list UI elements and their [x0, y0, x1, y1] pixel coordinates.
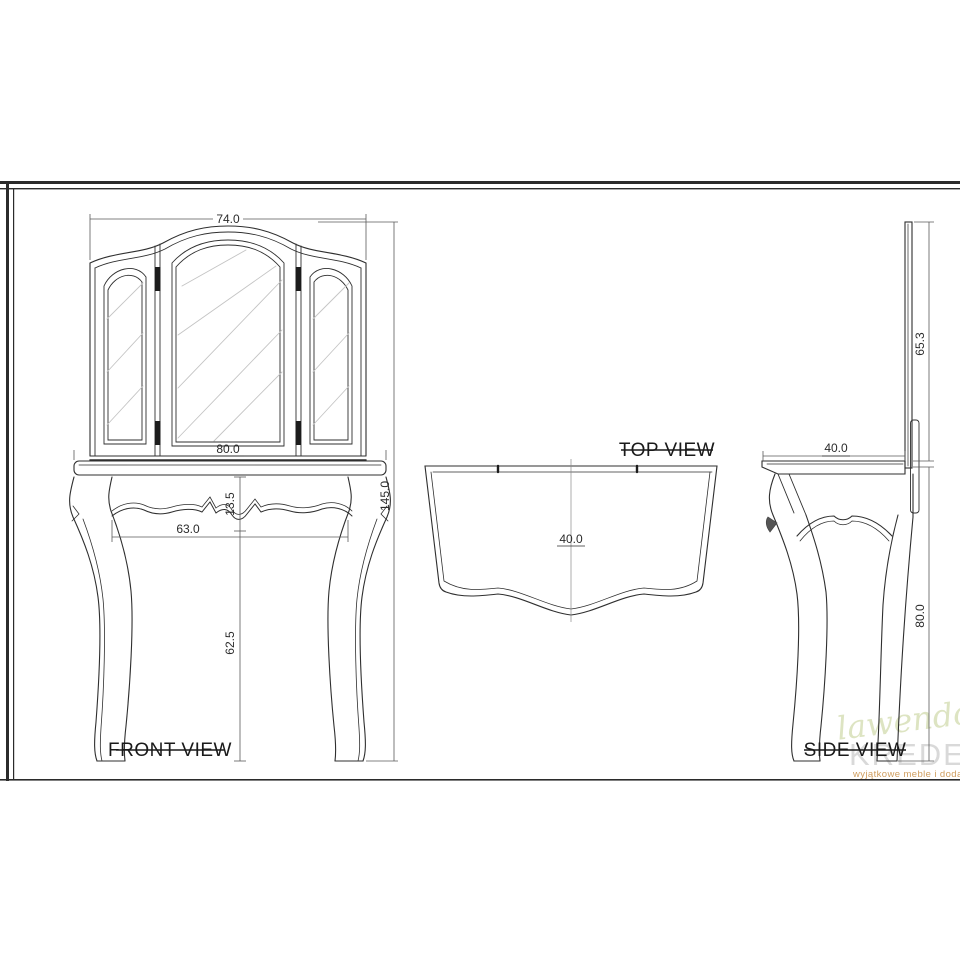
drawing-canvas: 74.0 80.0 145.0 13.5 63.0 62.5 40.0 [0, 0, 960, 960]
side-apron [797, 516, 892, 541]
side-mirror [905, 222, 919, 513]
dim-leg-span-value: 63.0 [176, 522, 200, 536]
center-panel-opening [172, 240, 284, 446]
side-tabletop [762, 461, 905, 474]
dim-mirror-width-value: 74.0 [216, 212, 240, 226]
side-back-leg [877, 474, 913, 761]
top-hinge-marks [498, 466, 637, 472]
side-tabletop-slab [762, 461, 905, 474]
hinge-left-bottom [155, 421, 161, 445]
mirror-center-panel [172, 240, 284, 446]
mirror-right-panel [310, 268, 352, 444]
dim-side-depth-value: 40.0 [824, 441, 848, 455]
frame-top-outer-rule [0, 181, 960, 184]
hinge-right-bottom [296, 421, 302, 445]
dim-leg-height-value: 62.5 [223, 631, 237, 655]
right-leg-accent-line [356, 519, 377, 761]
sheet-frame [0, 181, 960, 781]
right-leg-outer-contour [360, 477, 390, 761]
mirror-frame [90, 226, 366, 460]
front-tabletop [74, 461, 386, 475]
frame-left-inner-rule [13, 188, 14, 780]
dim-top-width-value: 80.0 [216, 442, 240, 456]
front-left-leg [70, 477, 132, 761]
view-labels: FRONT VIEW TOP VIEW SIDE VIEW [108, 440, 906, 761]
dim-mirror-height-value: 65.3 [913, 332, 927, 356]
dim-overall-height-value: 145.0 [378, 481, 392, 511]
dim-apron-height-value: 13.5 [223, 492, 237, 516]
dim-depth-value: 40.0 [559, 532, 583, 546]
left-panel-bevel [108, 275, 142, 440]
left-leg-knee-detail [72, 506, 79, 521]
mirror-hinges [155, 267, 301, 445]
mirror-top-inner-edge [95, 232, 361, 268]
tabletop-slab [74, 461, 386, 475]
right-panel-opening [310, 268, 352, 444]
right-panel-glass-hatch [313, 283, 349, 425]
center-panel-glass-hatch [178, 250, 282, 441]
side-apron-lower-edge [797, 516, 892, 536]
side-back-leg-back-edge [897, 474, 913, 761]
left-leg-inner-contour [109, 477, 132, 761]
technical-drawing-page: { "views": { "front": { "label": "FRONT … [0, 0, 960, 960]
hinge-right-top [296, 267, 302, 291]
frame-top-inner-rule [0, 188, 960, 189]
left-leg-outer-contour [70, 477, 100, 761]
front-right-leg [328, 477, 390, 761]
mirror-left-panel [104, 268, 146, 444]
frame-bottom-rule [0, 779, 960, 781]
hinge-left-top [155, 267, 161, 291]
side-front-leg-inner [806, 515, 827, 761]
left-panel-opening [104, 268, 146, 444]
right-panel-bevel [314, 275, 348, 440]
side-front-leg-face-b [789, 474, 806, 515]
dim-table-height-value: 80.0 [913, 604, 927, 628]
left-leg-accent-line [83, 519, 104, 761]
side-knee-carving [766, 517, 777, 532]
top-view-dimensions: 40.0 [557, 459, 585, 622]
frame-left-outer-rule [6, 181, 9, 781]
side-front-leg-outer [769, 474, 798, 761]
left-panel-glass-hatch [107, 283, 143, 425]
side-front-leg [766, 474, 827, 761]
side-view-drawing [762, 222, 919, 761]
side-back-leg-front-edge [877, 515, 898, 761]
right-leg-inner-contour [328, 477, 351, 761]
